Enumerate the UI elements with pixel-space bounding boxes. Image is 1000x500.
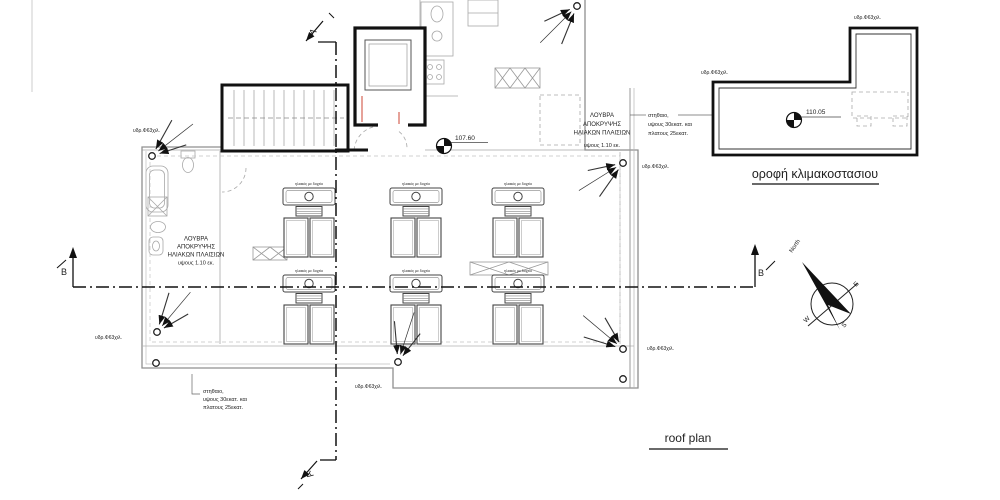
roof-plan-sheet: ΛΟΥΒΡΑ ΑΠΟΚΡΥΨΗΣ ΗΛΙΑΚΩΝ ΠΛΑΙΣΙΩΝ υψους … <box>0 0 1000 500</box>
slope-arrow <box>544 9 569 21</box>
hydro-pipe-label: υδρ.Φ63χιλ. <box>95 335 122 341</box>
note-line: υψους 30εκατ. και <box>203 397 248 403</box>
louvre-note-left: ΛΟΥΒΡΑ ΑΠΟΚΡΥΨΗΣ ΗΛΙΑΚΩΝ ΠΛΑΙΣΙΩΝ υψους … <box>168 237 225 267</box>
solar-unit-label: ηλιακός με δοχείο <box>295 269 323 273</box>
north-arrow: North E W S <box>789 239 861 330</box>
hydro-pipe-label: υδρ.Φ63χιλ. <box>133 128 160 134</box>
roof-drain <box>579 160 626 197</box>
note-line: ΗΛΙΑΚΩΝ ΠΛΑΙΣΙΩΝ <box>168 253 225 259</box>
solar-heater-unit: ηλιακός με δοχείο <box>283 269 335 344</box>
drain-circle <box>620 346 627 353</box>
note-line: ΗΛΙΑΚΩΝ ΠΛΑΙΣΙΩΝ <box>574 131 631 137</box>
stair-roof-detail: 110.05 οροφή κλιμακοστασιου <box>713 28 917 184</box>
solar-heater-unit: ηλιακός με δοχείο <box>283 182 335 257</box>
solar-heater-unit: ηλιακός με δοχείο <box>390 182 442 257</box>
solar-heater-unit: ηλιακός με δοχείο <box>390 269 442 344</box>
drain-circle <box>154 329 161 336</box>
outlet-circle <box>620 376 627 383</box>
louvre-note-right: ΛΟΥΒΡΑ ΑΠΟΚΡΥΨΗΣ ΗΛΙΑΚΩΝ ΠΛΑΙΣΙΩΝ υψους … <box>574 113 631 149</box>
section-letter-a-bottom: A <box>304 469 316 480</box>
level-value: 107.60 <box>455 135 475 142</box>
level-value: 110.05 <box>806 109 826 116</box>
main-roof-plan: ΛΟΥΒΡΑ ΑΠΟΚΡΥΨΗΣ ΗΛΙΑΚΩΝ ΠΛΑΙΣΙΩΝ υψους … <box>95 0 896 411</box>
roof-plan-caption: roof plan <box>665 431 712 445</box>
parapet-note-bottom: στηθαιο, υψους 30εκατ. και πλατους 25εκα… <box>192 374 248 411</box>
solar-unit-label: ηλιακός με δοχείο <box>295 182 323 186</box>
note-line: ΑΠΟΚΡΥΨΗΣ <box>583 122 621 128</box>
note-line: πλατους 25εκατ. <box>648 131 689 137</box>
note-line: ΛΟΥΒΡΑ <box>590 113 614 119</box>
slope-arrow <box>599 170 618 197</box>
parapet-outlets <box>153 360 627 383</box>
slope-arrow <box>156 120 172 149</box>
sheet-caption: roof plan <box>649 431 728 449</box>
elevator-shaft <box>355 28 425 130</box>
outlet-circle <box>153 360 160 367</box>
slope-arrow <box>164 314 188 328</box>
slope-arrow <box>588 165 615 171</box>
solar-unit-label: ηλιακός με δοχείο <box>402 182 430 186</box>
note-line: στηθαιο, <box>203 389 224 395</box>
slope-arrow <box>160 145 187 154</box>
hydro-pipe-label: υδρ.Φ63χιλ. <box>355 384 382 390</box>
drain-circle <box>395 359 402 366</box>
parapet-note-right: στηθαιο, υψους 30εκατ. και πλατους 25εκα… <box>630 113 714 137</box>
drain-circle <box>574 3 581 10</box>
hydro-pipe-labels: υδρ.Φ63χιλ.υδρ.Φ63χιλ.υδρ.Φ63χιλ.υδρ.Φ63… <box>95 15 881 390</box>
drain-circle <box>620 160 627 167</box>
solar-unit-label: ηλιακός με δοχείο <box>504 182 532 186</box>
solar-heater-unit: ηλιακός με δοχείο <box>492 182 544 257</box>
level-marker-main-roof: 107.60 <box>437 135 489 154</box>
solar-unit-label: ηλιακός με δοχείο <box>504 269 532 273</box>
hydro-pipe-label: υδρ.Φ63χιλ. <box>701 70 728 76</box>
note-line: πλατους 25εκατ. <box>203 405 244 411</box>
section-letter-b-left: B <box>61 267 67 277</box>
solar-unit-label: ηλιακός με δοχείο <box>402 269 430 273</box>
note-line: ΛΟΥΒΡΑ <box>184 237 208 243</box>
stairwell <box>222 85 348 151</box>
stair-roof-caption: οροφή κλιμακοστασιου <box>752 167 878 181</box>
solar-heater-unit: ηλιακός με δοχείο <box>492 269 544 344</box>
note-line: ΑΠΟΚΡΥΨΗΣ <box>177 245 215 251</box>
drain-circle <box>149 153 156 160</box>
note-line: υψους 1.10 εκ. <box>584 143 621 149</box>
hydro-pipe-label: υδρ.Φ63χιλ. <box>642 164 669 170</box>
roof-drain <box>540 3 580 44</box>
section-letter-b-right: B <box>758 268 764 278</box>
roof-drain <box>149 120 193 159</box>
compass-south-label: S <box>840 321 848 329</box>
note-line: υψους 30εκατ. και <box>648 122 693 128</box>
note-line: υψους 1.10 εκ. <box>178 261 215 267</box>
roof-plan-drawing: ΛΟΥΒΡΑ ΑΠΟΚΡΥΨΗΣ ΗΛΙΑΚΩΝ ΠΛΑΙΣΙΩΝ υψους … <box>0 0 1000 500</box>
compass-north-label: North <box>789 239 802 254</box>
slope-arrow <box>562 13 574 44</box>
hydro-pipe-label: υδρ.Φ63χιλ. <box>854 15 881 21</box>
roof-drain <box>154 292 191 335</box>
hydro-pipe-label: υδρ.Φ63χιλ. <box>647 346 674 352</box>
slope-arrow <box>579 167 616 190</box>
note-line: στηθαιο, <box>648 113 669 119</box>
slope-arrow <box>605 318 619 342</box>
